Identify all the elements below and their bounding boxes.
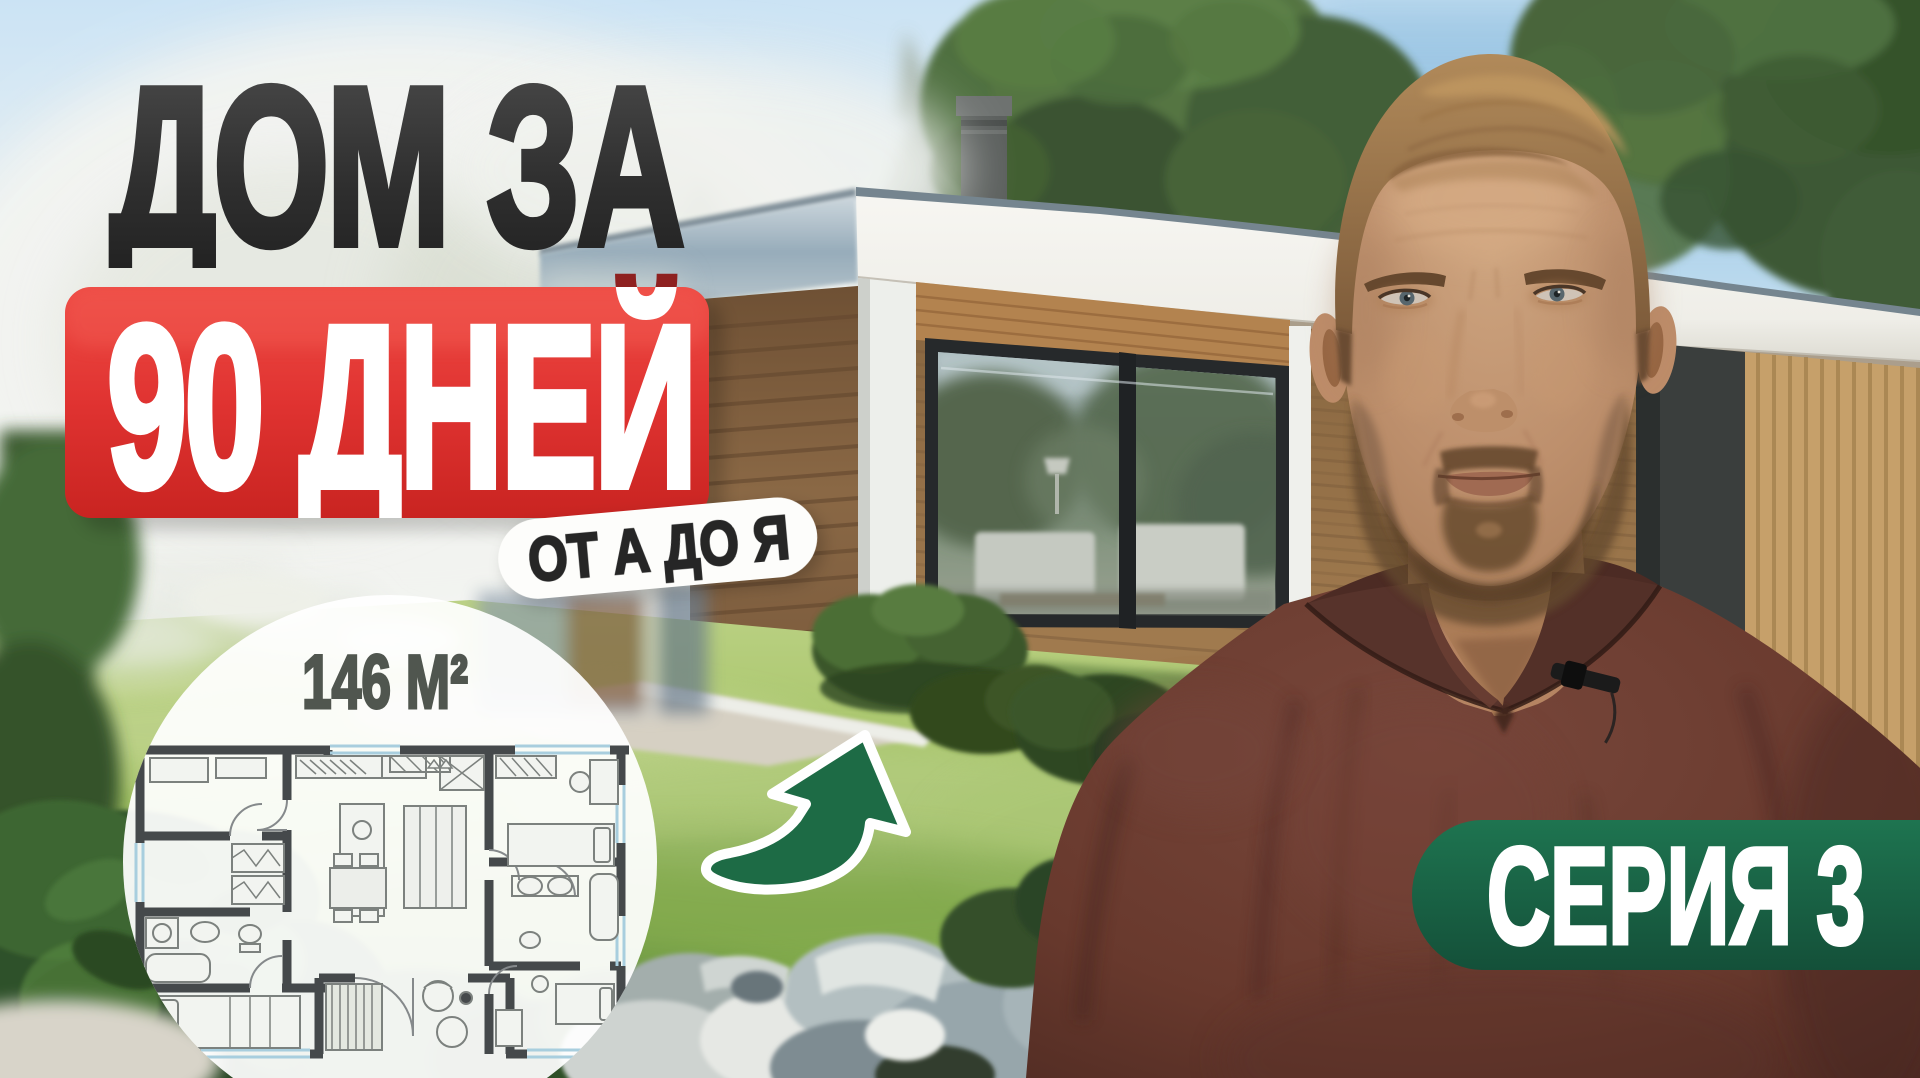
- svg-text:90 ДНЕЙ: 90 ДНЕЙ: [107, 277, 695, 535]
- svg-text:146 М²: 146 М²: [302, 640, 468, 725]
- svg-text:СЕРИЯ 3: СЕРИЯ 3: [1487, 820, 1865, 973]
- svg-text:ДОМ ЗА: ДОМ ЗА: [110, 40, 682, 292]
